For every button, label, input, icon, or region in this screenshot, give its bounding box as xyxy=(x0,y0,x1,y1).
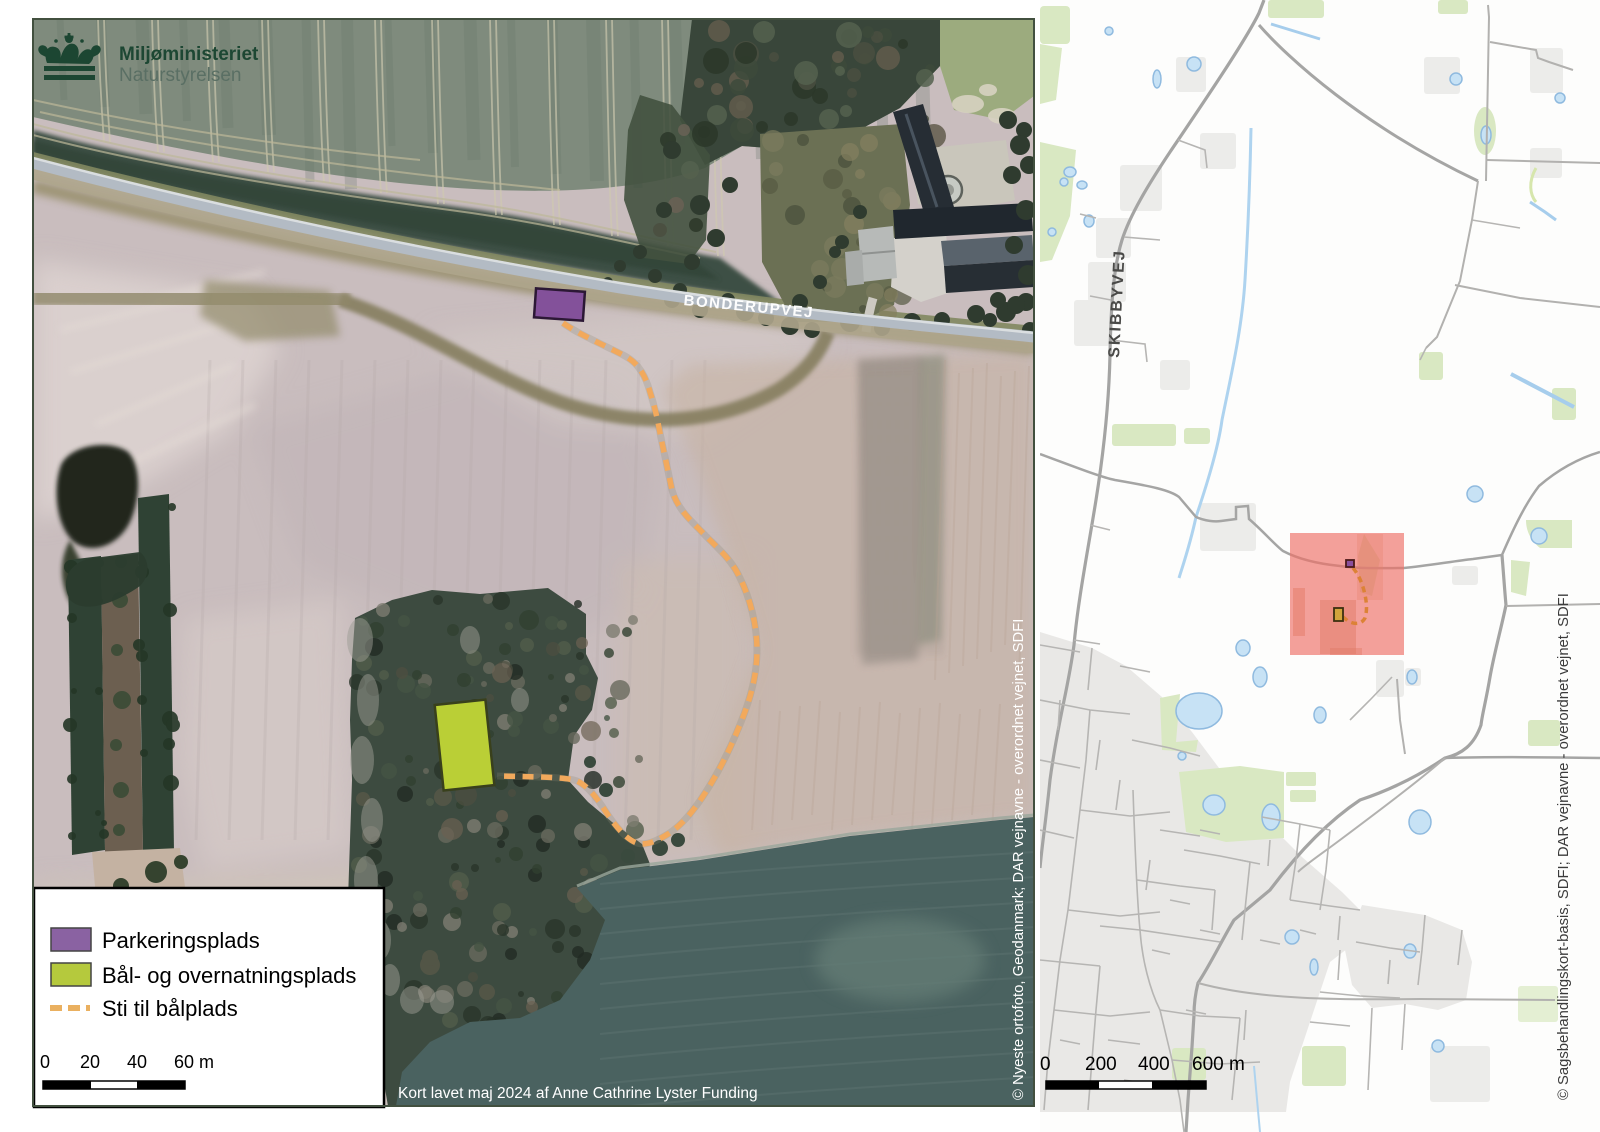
svg-text:Sti til bålplads: Sti til bålplads xyxy=(102,996,238,1021)
svg-text:Miljøministeriet: Miljøministeriet xyxy=(119,44,259,65)
svg-text:Naturstyrelsen: Naturstyrelsen xyxy=(119,65,242,86)
svg-text:200: 200 xyxy=(1085,1054,1117,1075)
svg-text:600 m: 600 m xyxy=(1192,1054,1245,1075)
svg-text:0: 0 xyxy=(1040,1054,1051,1075)
svg-text:60 m: 60 m xyxy=(174,1052,214,1072)
svg-text:0: 0 xyxy=(40,1052,50,1072)
svg-text:40: 40 xyxy=(127,1052,147,1072)
svg-text:© Nyeste ortofoto, Geodanmark;: © Nyeste ortofoto, Geodanmark; DAR vejna… xyxy=(1011,619,1027,1100)
svg-text:Bål- og overnatningsplads: Bål- og overnatningsplads xyxy=(102,963,356,988)
svg-text:© Sagsbehandlingskort-basis, S: © Sagsbehandlingskort-basis, SDFI; DAR v… xyxy=(1556,593,1572,1100)
svg-text:20: 20 xyxy=(80,1052,100,1072)
svg-text:400: 400 xyxy=(1138,1054,1170,1075)
svg-text:Parkeringsplads: Parkeringsplads xyxy=(102,928,260,953)
svg-text:Kort lavet maj 2024 af Anne Ca: Kort lavet maj 2024 af Anne Cathrine Lys… xyxy=(398,1085,758,1102)
